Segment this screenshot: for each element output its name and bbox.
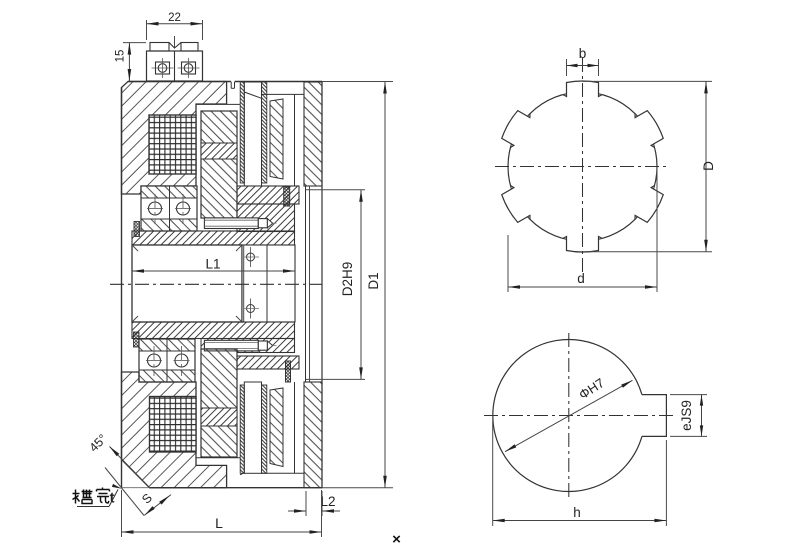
svg-text:×: ×	[392, 531, 401, 548]
svg-text:15: 15	[115, 50, 127, 63]
svg-text:D1: D1	[366, 272, 381, 289]
svg-text:L: L	[215, 515, 223, 531]
svg-text:D2H9: D2H9	[340, 262, 355, 297]
svg-text:22: 22	[168, 12, 181, 24]
svg-text:L2: L2	[320, 494, 335, 509]
svg-text:D: D	[701, 161, 716, 171]
svg-text:d: d	[577, 271, 585, 286]
svg-text:h: h	[573, 505, 581, 520]
svg-text:b: b	[579, 46, 587, 61]
svg-text:eJS9: eJS9	[679, 400, 694, 431]
svg-text:L1: L1	[205, 256, 220, 271]
